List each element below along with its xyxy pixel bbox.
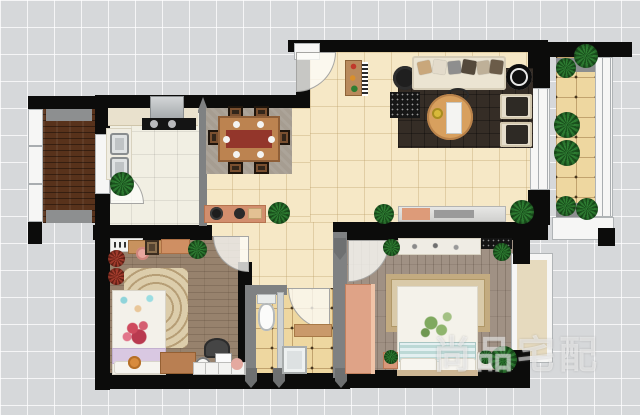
plant-nightstand-left: [384, 350, 398, 364]
plate: [257, 151, 264, 158]
plant-balcony-bottom-2: [576, 198, 598, 220]
left-balcony-floor: [43, 108, 95, 223]
wall-balcony-left-bottomcap: [28, 222, 42, 244]
sofa-pillow: [461, 59, 477, 75]
table-runner: [226, 130, 272, 148]
wall-bathroom-left: [245, 285, 256, 376]
window-left-balcony: [28, 109, 43, 222]
brand-watermark: 尚品宅配: [433, 324, 601, 379]
wall-master-right-top: [513, 222, 530, 264]
plant-balcony-bottom-1: [556, 196, 576, 216]
plant-balcony-mid-2: [554, 140, 580, 166]
flower-pot-wall-2: [108, 268, 125, 285]
pot: [234, 208, 245, 219]
master-dresser: [398, 238, 481, 255]
burner: [168, 120, 176, 128]
armchair-cushion: [506, 125, 528, 144]
burner: [150, 120, 158, 128]
plant-dining: [268, 202, 290, 224]
plant-living-left: [374, 204, 394, 224]
bedroom2-desk: [160, 352, 196, 374]
bedroom2-dresser: [161, 239, 190, 254]
plant-balcony-top-1: [556, 58, 576, 78]
coffee-table-tray: [446, 102, 462, 134]
plant-balcony-top-2: [574, 44, 598, 68]
flower-pot-wall-1: [108, 250, 125, 267]
plant-bedroom2-top: [188, 240, 207, 259]
master-wardrobe: [345, 284, 375, 374]
plant-balcony-mid-1: [554, 112, 580, 138]
sofa-pillow: [417, 60, 432, 75]
cutting-board: [248, 208, 262, 219]
sofa-pillow: [489, 59, 504, 74]
sofa-pillow: [432, 59, 447, 75]
plate: [223, 136, 230, 143]
left-balcony-mat-top: [46, 108, 92, 121]
armchair-cushion: [506, 97, 528, 116]
sofa: [412, 56, 506, 90]
dining-chair: [254, 162, 269, 174]
shower-tray: [282, 346, 307, 374]
left-balcony-mat-bottom: [46, 210, 92, 223]
shoe-console: [345, 60, 362, 96]
plant-master-dresser: [493, 243, 511, 261]
wall-block-balcony-sill: [598, 228, 615, 246]
stool-pink: [231, 358, 243, 370]
wok: [210, 207, 223, 220]
sink-basin: [110, 133, 129, 155]
plant-kitchen: [110, 172, 134, 196]
coffee-table-bowl: [432, 108, 443, 119]
sofa-pillow: [447, 60, 461, 74]
sofa-side-table: [506, 64, 532, 90]
cat-on-bed: [128, 356, 141, 369]
wall-balcony-left-top: [28, 96, 97, 109]
bathroom-shelf: [294, 324, 332, 337]
console-slat-strip: [362, 62, 368, 96]
armchair-top: [500, 94, 532, 119]
plate: [268, 136, 275, 143]
tv-cabinet: [390, 92, 420, 118]
plant-living-right: [510, 200, 534, 224]
armchair-bottom: [500, 122, 532, 147]
sofa-pillow: [476, 60, 491, 75]
plate: [257, 121, 264, 128]
wall-bottom-left: [95, 373, 350, 389]
window-living-right: [530, 88, 550, 190]
wall-left-bedroom: [95, 225, 110, 390]
floor-plan-canvas: 尚品宅配: [0, 0, 640, 415]
dining-chair: [228, 162, 243, 174]
toilet-bowl: [258, 303, 275, 331]
plate: [233, 121, 240, 128]
wall-top-living: [288, 40, 548, 52]
window-balcony-right: [595, 57, 613, 217]
bedroom2-picture: [145, 240, 159, 255]
plate: [233, 151, 240, 158]
plant-master-doorside: [383, 239, 400, 256]
console-salmon-box: [402, 208, 430, 220]
console-slot: [434, 210, 474, 218]
